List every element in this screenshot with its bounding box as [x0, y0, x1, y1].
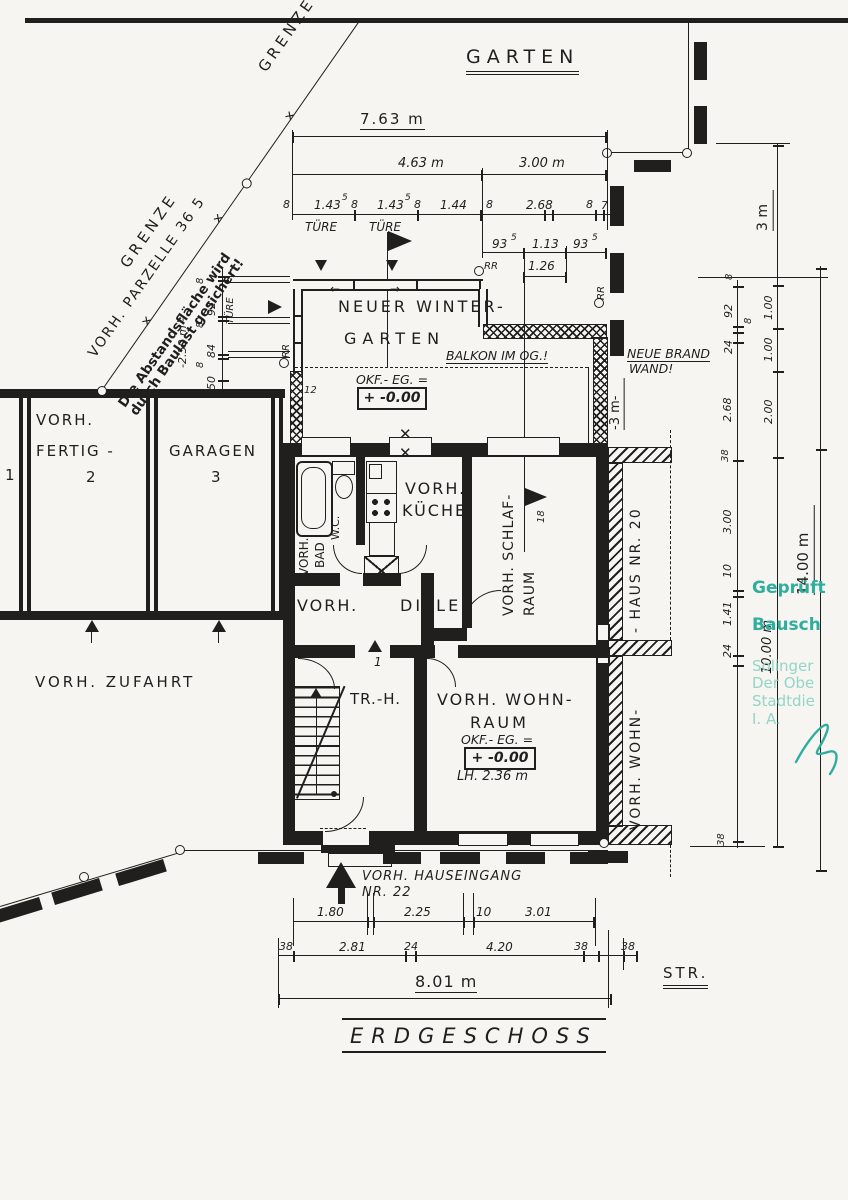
- north-flag: [388, 231, 412, 251]
- dim-281: 2.81: [339, 941, 366, 954]
- street-edge-line: [183, 850, 608, 851]
- hedge-block: [610, 320, 624, 356]
- garage-entry-arrow: [212, 620, 226, 632]
- garage-entry-arrow: [85, 620, 99, 632]
- dim-225: 2.25: [404, 906, 431, 919]
- garage-wall-top: [0, 389, 285, 398]
- kueche-label-line1: VORH.: [405, 481, 466, 498]
- witness-line: [716, 143, 790, 144]
- window-bad: [301, 437, 351, 456]
- garage-wall: [19, 389, 23, 617]
- brandwand-note-line2: WAND!: [629, 362, 673, 375]
- kitchen-counter: [369, 522, 395, 556]
- haus20-label: - HAUS NR. 20: [629, 468, 644, 633]
- dim-8: 8: [486, 199, 493, 211]
- street-block: [440, 852, 480, 864]
- grenze-label-upper: GRENZE: [256, 0, 319, 75]
- garage2-number: 2: [86, 470, 96, 486]
- rr-label: RR: [484, 262, 498, 273]
- street-block: [0, 897, 43, 924]
- stamp-signature: [788, 700, 848, 780]
- bad-label-line1: VORH.: [298, 518, 311, 576]
- wintergarten-label-line1: NEUER WINTER-: [338, 299, 506, 316]
- hauseingang-arrow-stem: [338, 888, 345, 904]
- axis-line-dashdot: [670, 845, 671, 877]
- garage1-number: 1: [5, 468, 15, 484]
- garage-wall: [279, 389, 283, 617]
- demolition-x-mark: ✕: [399, 446, 412, 462]
- dim-92: 92: [206, 290, 218, 316]
- neighbour-wall-band: [608, 640, 672, 656]
- toilet-tank: [332, 461, 355, 475]
- neighbour-wall: [608, 656, 623, 827]
- garage2-label-line1: VORH.: [36, 413, 94, 429]
- step-count-1: 1: [374, 656, 382, 669]
- slide-arrow-right: →: [390, 283, 400, 296]
- dim-93: 93: [492, 238, 507, 251]
- dim-420: 4.20: [486, 941, 513, 954]
- balkon-outline-dashed: [295, 367, 588, 368]
- schlafraum-label-line1: VORH. SCHLAF-: [502, 484, 517, 616]
- boundary-cross-mark: ✕: [211, 211, 227, 226]
- dim-line-total-bottom: [278, 998, 612, 999]
- wall-dim-12: 12: [304, 386, 317, 397]
- wintergarten-window-wall-left: [293, 289, 303, 373]
- garten-label: GARTEN: [466, 48, 579, 75]
- dim-18: 18: [537, 503, 548, 523]
- okf-label-wintergarten: OKF.- EG. =: [356, 373, 428, 386]
- slide-arrow-left: ←: [330, 283, 340, 296]
- hauseingang-label-line1: VORH. HAUSEINGANG: [362, 870, 522, 884]
- dim-38: 38: [574, 941, 588, 953]
- wohnraum-label-line1: VORH. WOHN-: [437, 692, 573, 709]
- witness-line: [607, 130, 608, 230]
- dim-3m-side: -3 m-: [609, 378, 625, 430]
- door-swing-dashed: [320, 828, 366, 829]
- step-arrow: [368, 640, 382, 652]
- flag-pole: [524, 252, 525, 552]
- dim-line-126: [523, 276, 567, 277]
- hedge-block: [694, 106, 707, 144]
- door-arc-entrance: [325, 797, 364, 832]
- wintergarten-new-wall-left: [290, 371, 303, 445]
- dim-93-sup: 5: [511, 234, 517, 243]
- garage-entry-arrow-stem: [91, 631, 92, 643]
- neighbour-wohn-label: VORH. WOHN-: [629, 660, 644, 830]
- dim-141: 1.41: [722, 596, 734, 626]
- dim-line-463-300: [292, 174, 607, 175]
- wall-bad-diele: [283, 573, 340, 586]
- dim-300: 3.00: [722, 500, 734, 534]
- witness-line: [566, 246, 567, 282]
- fence-line-horizontal: [607, 152, 687, 153]
- toilet-bowl: [335, 475, 353, 499]
- entry-arrow-down: [315, 260, 327, 271]
- treppenhaus-label: TR.-H.: [350, 692, 401, 708]
- dim-chain-top: [292, 214, 613, 215]
- schlafraum-label-line2: RAUM: [523, 540, 538, 616]
- wintergarten-new-wall-right: [593, 337, 608, 445]
- rr-drain-circle: [279, 358, 289, 368]
- dim-8: 8: [196, 314, 207, 328]
- dim-92: 92: [723, 290, 735, 318]
- kitchen-small-appliance: [369, 464, 382, 479]
- dim-180: 1.80: [317, 906, 344, 919]
- hedge-block: [634, 160, 671, 172]
- wall-diele-schlaf-stub: [421, 628, 467, 641]
- garage-entry-arrow-stem: [218, 631, 219, 643]
- door-arc-bad: [333, 545, 362, 574]
- dim-38: 38: [721, 442, 732, 462]
- boundary-point-circle: [240, 176, 254, 190]
- witness-line: [367, 893, 368, 935]
- witness-line: [608, 930, 609, 1008]
- diele-label-line2: DIELE: [400, 598, 461, 615]
- dim-93: 93: [573, 238, 588, 251]
- dim-chain-left: [222, 268, 223, 396]
- entrance-door-gap: [323, 831, 369, 845]
- fence-node-circle: [682, 148, 692, 158]
- garage-wall: [271, 389, 275, 617]
- lh-label: LH. 2.36 m: [457, 770, 528, 784]
- street-block: [506, 852, 545, 864]
- sill-line-pair: [228, 276, 290, 283]
- dim-143: 1.43: [377, 199, 404, 212]
- dim-8: 8: [283, 199, 290, 211]
- street-block: [258, 852, 304, 864]
- wohnraum-label-line2: RAUM: [470, 715, 529, 732]
- tuere-label: TÜRE: [305, 221, 337, 234]
- demolition-x-mark: ✕: [399, 427, 412, 443]
- door-arc-kueche: [398, 545, 427, 574]
- floor-plan-sheet: GARTEN ✕ ✕ ✕ GRENZE GRENZE VORH. PARZELL…: [0, 0, 848, 1200]
- sill-line-pair: [228, 351, 290, 358]
- dim-143: 1.43: [314, 199, 341, 212]
- dim-10b: 10: [476, 906, 491, 919]
- dim-8: 8: [351, 199, 358, 211]
- dim-50: 50: [206, 366, 218, 390]
- garage3-number: 3: [211, 470, 221, 486]
- neighbour-wall: [608, 463, 623, 640]
- dim-line-763: [292, 136, 607, 137]
- hauseingang-arrow: [326, 862, 356, 888]
- wintergarten-new-wall-band: [483, 324, 607, 339]
- street-block: [383, 852, 421, 864]
- wall-bad-kueche: [356, 457, 365, 545]
- wc-label: W.C.: [330, 500, 342, 540]
- site-border-top: [25, 18, 848, 23]
- brandwand-note-line1: NEUE BRAND: [627, 347, 710, 362]
- garage-wall: [27, 389, 31, 617]
- rr-label: RR: [597, 276, 608, 300]
- witness-line: [595, 898, 596, 946]
- boundary-cross-mark: ✕: [139, 314, 155, 329]
- dim-total-bottom: 8.01 m: [415, 974, 477, 993]
- kueche-label-line2: KÜCHE: [402, 503, 467, 520]
- sheet-title: ERDGESCHOSS: [342, 1018, 606, 1053]
- dim-300m: 3.00 m: [519, 157, 565, 171]
- witness-line: [463, 893, 464, 935]
- dim-100: 1.00: [763, 288, 775, 320]
- dim-268: 2.68: [722, 388, 734, 422]
- house-wall-right: [596, 443, 608, 845]
- street-node-circle: [175, 845, 185, 855]
- dim-chain-bottom-lower: [278, 955, 638, 956]
- level-box-wohnraum: + -0.00: [464, 747, 536, 770]
- dim-38: 38: [621, 941, 635, 953]
- fence-line-vertical: [688, 23, 689, 153]
- rr-drain-circle: [594, 298, 604, 308]
- diele-label-line1: VORH.: [297, 598, 358, 615]
- window-wohnraum: [530, 833, 579, 846]
- dim-8: 8: [725, 266, 736, 280]
- witness-line: [690, 846, 765, 847]
- dim-8: 8: [586, 199, 593, 211]
- dim-250m: -2.50 m -: [177, 288, 189, 368]
- dim-total-top: 7.63 m: [360, 112, 425, 130]
- hedge-block: [610, 253, 624, 293]
- street-node-circle: [79, 872, 89, 882]
- dim-143-sup: 5: [405, 194, 411, 203]
- dim-100: 1.00: [763, 330, 775, 362]
- garage-wall: [154, 389, 158, 617]
- staircase: [294, 686, 340, 800]
- hauseingang-label-line2: NR. 22: [362, 886, 412, 900]
- boundary-cross-mark: ✕: [282, 109, 298, 124]
- window-wohnraum: [458, 833, 508, 846]
- dim-38: 38: [279, 941, 293, 953]
- garage-wall: [146, 389, 150, 617]
- dim-3m: 3 m: [756, 190, 774, 231]
- dim-8: 8: [196, 354, 207, 368]
- dim-8: 8: [744, 310, 755, 324]
- bad-label-line2: BAD: [314, 528, 327, 568]
- door-arc-treppenhaus: [298, 658, 335, 689]
- dim-10: 10: [722, 558, 734, 578]
- kitchen-shaft: [364, 556, 399, 586]
- balkon-note: BALKON IM OG.!: [446, 349, 548, 364]
- dim-126: 1.26: [528, 260, 555, 273]
- dim-chain-bottom-upper: [293, 921, 595, 922]
- axis-line-dashdot: [670, 430, 671, 640]
- balkon-edge-line: [588, 367, 589, 443]
- stamp-line1: Geprüft: [752, 580, 848, 598]
- wall-trh-wohnraum: [414, 645, 427, 833]
- dim-301: 3.01: [525, 906, 552, 919]
- door-arc-wohnraum: [427, 658, 456, 687]
- staircase-up-arrow: [310, 688, 322, 698]
- dim-113: 1.13: [532, 238, 559, 251]
- wall-diele-wohnraum: [458, 645, 608, 658]
- rr-drain-circle: [474, 266, 484, 276]
- corner-node-circle: [599, 838, 609, 848]
- street-block: [570, 852, 608, 864]
- garage-wall-bottom: [0, 611, 285, 620]
- garage2-label-line2: FERTIG -: [36, 444, 115, 460]
- hedge-block: [694, 42, 707, 80]
- dim-24: 24: [723, 332, 735, 354]
- dim-8: 8: [196, 270, 207, 284]
- witness-line: [482, 168, 483, 258]
- entry-arrow-right: [268, 300, 282, 314]
- sill-line-pair: [228, 317, 290, 324]
- boundary-point-circle: [97, 386, 107, 396]
- dim-84: 84: [206, 332, 218, 358]
- dim-8: 8: [414, 199, 421, 211]
- dim-463: 4.63 m: [398, 157, 444, 171]
- witness-line: [473, 893, 474, 935]
- witness-line: [373, 893, 374, 935]
- staircase-direction-line: [316, 696, 317, 794]
- dim-chain-93: [482, 252, 607, 253]
- dim-chain-right-inner: [737, 280, 738, 848]
- witness-line: [293, 898, 294, 946]
- level-box-wintergarten: + -0.00: [357, 387, 427, 410]
- dim-93-sup: 5: [592, 234, 598, 243]
- kitchen-stove: [366, 493, 397, 523]
- stamp-line2: Bausch: [752, 617, 848, 635]
- dim-200: 2.00: [763, 392, 775, 424]
- garage3-label: GARAGEN: [169, 444, 257, 460]
- strasse-label: STR.: [663, 966, 708, 989]
- okf-label-wohnraum: OKF.- EG. =: [461, 733, 533, 746]
- witness-line: [292, 130, 293, 220]
- witness-line: [698, 277, 828, 278]
- dim-143-sup: 5: [342, 194, 348, 203]
- window-schlafraum: [487, 437, 560, 456]
- dim-38: 38: [717, 826, 728, 846]
- wintergarten-window-wall-top: [293, 279, 483, 291]
- zufahrt-label: VORH. ZUFAHRT: [35, 675, 195, 691]
- neighbour-wall-band: [608, 447, 672, 463]
- stamp-line4: Der Obe: [752, 676, 848, 692]
- wintergarten-label-line2: GARTEN: [344, 331, 445, 348]
- dim-144: 1.44: [440, 199, 467, 212]
- stamp-line3: Solinger: [752, 659, 848, 675]
- dim-24b: 24: [404, 941, 418, 953]
- dim-268: 2.68: [526, 199, 553, 212]
- dim-24: 24: [722, 636, 734, 658]
- stamp-signature-stroke: [796, 725, 837, 774]
- staircase-start-dot: [331, 791, 337, 797]
- wall-trh-diele: [283, 645, 355, 658]
